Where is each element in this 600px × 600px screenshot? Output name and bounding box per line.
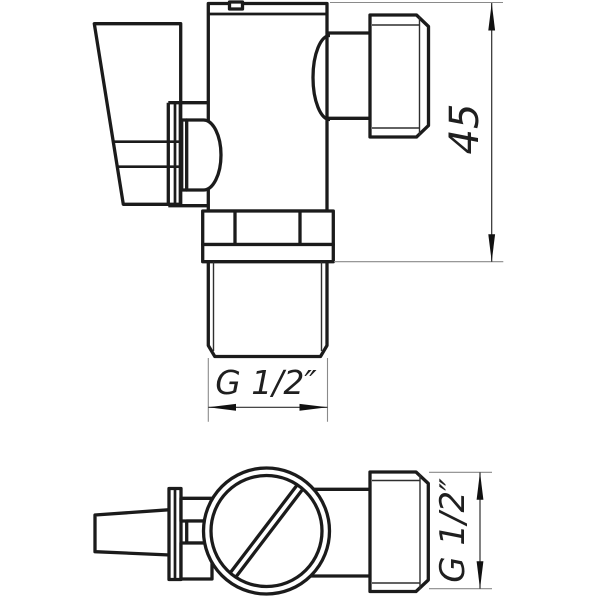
drawing-sheet: G 1/2″ 45: [0, 0, 600, 600]
dimension-outlet-thread: G 1/2″: [429, 472, 492, 588]
hex-nut: [203, 211, 334, 245]
dimension-label-outlet-thread: G 1/2″: [433, 478, 473, 583]
arrow-up-icon: [477, 472, 484, 500]
screw-cap-outer-circle: [204, 468, 330, 594]
front-view: G 1/2″ 45: [94, 2, 503, 422]
arrow-down-icon: [477, 561, 484, 589]
outlet-nut-bottom: [370, 472, 428, 592]
dimension-label-height: 45: [442, 104, 488, 155]
lever-handle-bottom: [95, 510, 170, 555]
bottom-view: G 1/2″: [95, 468, 492, 594]
flange-band: [203, 245, 334, 262]
outlet-neck: [327, 33, 370, 118]
arrow-right-icon: [300, 404, 328, 411]
dimension-tail-thread: G 1/2″: [208, 358, 327, 422]
valve-body: [208, 4, 327, 212]
arrow-down-icon: [488, 234, 495, 262]
stem-boss: [187, 120, 221, 190]
dimension-label-tail-thread: G 1/2″: [215, 363, 317, 402]
arrow-left-icon: [208, 404, 236, 411]
arrow-up-icon: [488, 3, 495, 31]
valve-technical-drawing: G 1/2″ 45: [0, 0, 600, 600]
threaded-tail: [208, 262, 327, 357]
cap-notch: [230, 2, 243, 9]
handle-bracket-bottom: [169, 489, 181, 580]
outlet-nut: [370, 15, 429, 137]
